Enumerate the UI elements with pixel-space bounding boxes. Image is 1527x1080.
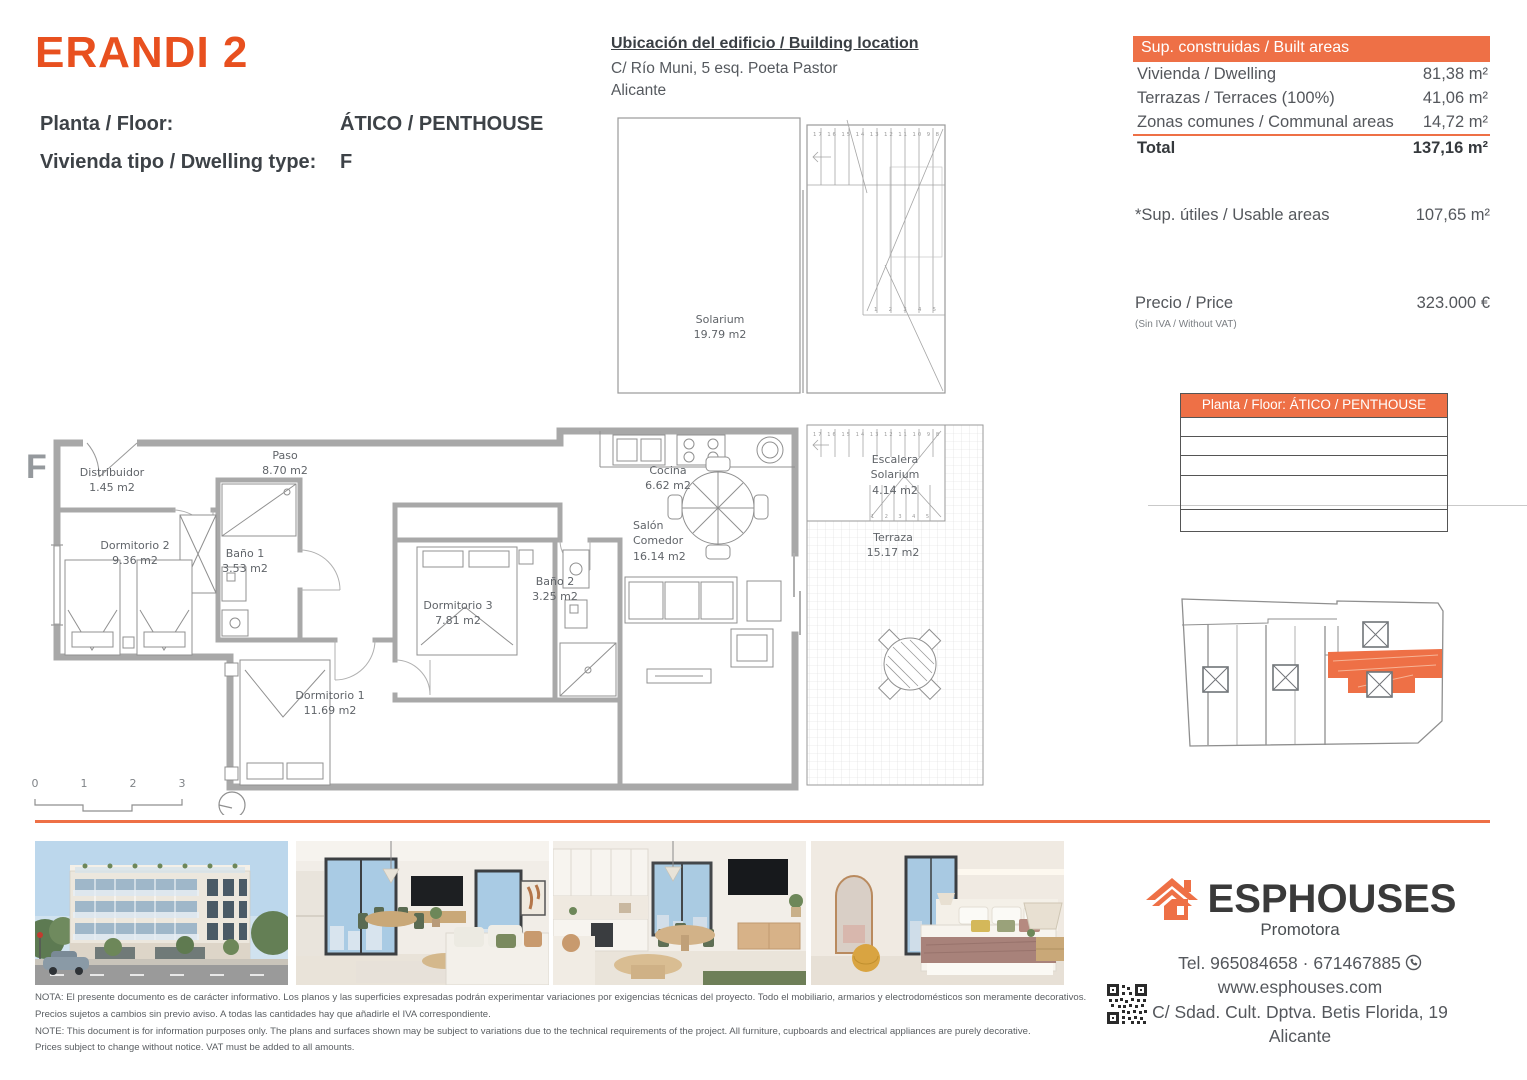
sink	[222, 610, 248, 636]
scale-tick: 3	[179, 777, 186, 790]
empty-row	[1181, 417, 1447, 436]
address-line: C/ Sdad. Cult. Dptva. Betis Florida, 19	[1100, 1001, 1500, 1023]
floor-key-header: Planta / Floor: ÁTICO / PENTHOUSE	[1181, 394, 1447, 417]
total-value: 137,16 m²	[1413, 139, 1488, 158]
floor-key-table: Planta / Floor: ÁTICO / PENTHOUSE	[1180, 393, 1448, 532]
price-label: Precio / Price	[1135, 294, 1233, 312]
company-name: ESPHOUSES	[1208, 877, 1457, 922]
building-city: Alicante	[611, 80, 666, 102]
photo-living-room	[296, 841, 549, 985]
empty-row	[1181, 455, 1447, 475]
brochure-page: ERANDI 2 Planta / Floor: ÁTICO / PENTHOU…	[0, 0, 1527, 1080]
divider	[35, 820, 1490, 823]
usable-value: 107,65 m²	[1416, 206, 1490, 225]
row-label: Zonas comunes / Communal areas	[1137, 113, 1394, 132]
scale-bar	[35, 792, 245, 815]
address-city: Alicante	[1100, 1025, 1500, 1047]
usable-areas-row: *Sup. útiles / Usable areas 107,65 m²	[1135, 206, 1490, 225]
total-label: Total	[1137, 139, 1175, 158]
room-label-bano-1: Baño 13.53 m2	[205, 546, 285, 577]
stair-numbers: 17 16 15 14 13 12 11 10 9 8	[813, 132, 940, 138]
scale-tick: 2	[130, 777, 137, 790]
nightstand	[123, 637, 134, 648]
room-label-escalera-solarium: Escalera Solarium4.14 m2	[860, 452, 930, 498]
price-row: Precio / Price (Sin IVA / Without VAT) 3…	[1135, 294, 1490, 332]
built-areas-header: Sup. construidas / Built areas	[1133, 36, 1490, 62]
table-row-total: Total 137,16 m²	[1133, 134, 1490, 160]
room-label-dormitorio-2: Dormitorio 29.36 m2	[75, 538, 195, 569]
row-label: Vivienda / Dwelling	[1137, 65, 1276, 84]
nightstand	[519, 550, 533, 564]
room-label-paso: Paso8.70 m2	[235, 448, 335, 479]
empty-row	[1181, 436, 1447, 455]
row-label: Terrazas / Terraces (100%)	[1137, 89, 1335, 108]
scale-tick: 0	[32, 777, 39, 790]
round-sink	[757, 437, 783, 463]
chair	[706, 545, 730, 559]
disclaimer-line: Prices subject to change without notice.…	[35, 1040, 1090, 1057]
stair-numbers: 17 16 15 14 13 12 11 10 9 8	[813, 432, 939, 438]
row-value: 41,06 m²	[1423, 89, 1488, 108]
built-areas-table: Sup. construidas / Built areas Vivienda …	[1133, 36, 1490, 160]
chair	[668, 495, 682, 519]
photo-bedroom	[811, 841, 1064, 985]
photo-building-exterior	[35, 841, 288, 985]
scale-tick: 1	[81, 777, 88, 790]
room-label-dormitorio-3: Dormitorio 37.81 m2	[398, 598, 518, 629]
room-label-salon-comedor: Salón Comedor16.14 m2	[633, 518, 699, 564]
house-logo-icon	[1144, 876, 1202, 922]
row-value: 14,72 m²	[1423, 113, 1488, 132]
stair-numbers: 1 2 3 4 5	[874, 307, 937, 313]
dwelling-marker: F	[26, 448, 47, 487]
stair-numbers: 1 2 3 4 5	[871, 514, 929, 520]
whatsapp-icon	[1405, 954, 1422, 971]
table-row: Terrazas / Terraces (100%) 41,06 m²	[1133, 86, 1490, 110]
nightstand	[225, 663, 238, 676]
empty-row	[1181, 509, 1447, 531]
chair	[754, 495, 768, 519]
disclaimer-line: NOTA: El presente documento es de caráct…	[35, 990, 1090, 1007]
disclaimer-line: Precios sujetos a cambios sin previo avi…	[35, 1007, 1090, 1024]
usable-label: *Sup. útiles / Usable areas	[1135, 206, 1329, 225]
table-row: Vivienda / Dwelling 81,38 m²	[1133, 62, 1490, 86]
building-location-title: Ubicación del edificio / Building locati…	[611, 35, 919, 53]
price-value: 323.000 €	[1417, 294, 1490, 332]
website-link: www.esphouses.com	[1100, 976, 1500, 998]
room-label-dormitorio-1: Dormitorio 111.69 m2	[270, 688, 390, 719]
photo-kitchen	[553, 841, 806, 985]
price-note: (Sin IVA / Without VAT)	[1135, 319, 1237, 330]
phone-line: Tel. 965084658 · 671467885	[1100, 952, 1500, 974]
room-label-bano-2: Baño 23.25 m2	[515, 574, 595, 605]
room-label-terraza: Terraza15.17 m2	[843, 530, 943, 561]
page-title: ERANDI 2	[35, 28, 248, 78]
table-row: Zonas comunes / Communal areas 14,72 m²	[1133, 110, 1490, 134]
footer: ESPHOUSES Promotora Tel. 965084658 · 671…	[1100, 876, 1500, 1048]
site-plan	[1178, 595, 1468, 770]
disclaimer: NOTA: El presente documento es de caráct…	[35, 990, 1090, 1057]
side-table	[747, 581, 781, 621]
company-tagline: Promotora	[1100, 920, 1500, 940]
room-label-distribuidor: Distribuidor1.45 m2	[62, 465, 162, 496]
nightstand	[225, 767, 238, 780]
row-value: 81,38 m²	[1423, 65, 1488, 84]
room-label-cocina: Cocina6.62 m2	[618, 463, 718, 494]
disclaimer-line: NOTE: This document is for information p…	[35, 1024, 1090, 1041]
room-label-solarium: Solarium19.79 m2	[660, 312, 780, 343]
qr-code	[1106, 983, 1148, 1025]
empty-row	[1181, 475, 1447, 509]
building-address: C/ Río Muni, 5 esq. Poeta Pastor	[611, 58, 838, 80]
company-logo: ESPHOUSES	[1100, 876, 1500, 922]
north-arrow-icon	[219, 792, 245, 815]
